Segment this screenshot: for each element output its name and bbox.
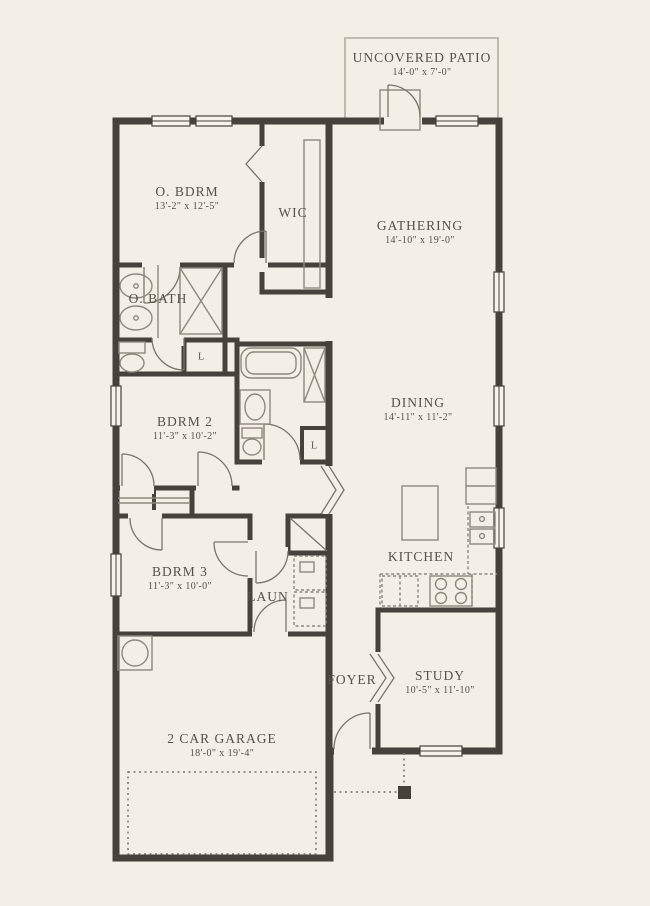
closet-label-linen-a: L: [198, 351, 204, 363]
kitchen-sink: [470, 512, 495, 527]
room-label-bedroom2: BDRM 2 11'-3" x 10'-2": [153, 414, 217, 442]
room-label-kitchen: KITCHEN: [388, 549, 454, 565]
porch-post: [398, 786, 411, 799]
room-label-dining: DINING 14'-11" x 11'-2": [383, 395, 452, 423]
room-label-foyer: FOYER: [327, 672, 376, 688]
water-heater: [122, 640, 148, 666]
room-label-owner-bath: O. BATH: [129, 291, 188, 307]
coat-closet-door: [290, 518, 327, 551]
floor-plan-page: UNCOVERED PATIO 14'-0" x 7'-0" O. BDRM 1…: [0, 0, 650, 906]
room-label-study: STUDY 10'-5" x 11'-10": [405, 668, 474, 696]
laundry-fixtures: [294, 556, 326, 626]
bedroom3-closet-door: [130, 518, 162, 550]
bath2-door: [264, 424, 300, 460]
bedroom2-closet-door: [122, 454, 154, 486]
room-label-gathering: GATHERING 14'-10" x 19'-0": [377, 218, 463, 246]
front-door: [334, 713, 370, 749]
porch-outline: [334, 753, 411, 799]
room-label-wic: WIC: [278, 205, 307, 221]
washer: [294, 556, 326, 590]
room-label-patio: UNCOVERED PATIO 14'-0" x 7'-0": [353, 50, 492, 78]
bath-fixtures: [118, 140, 325, 503]
kitchen-island: [402, 486, 438, 540]
garage-door-outline: [128, 772, 316, 854]
bedroom3-door: [214, 542, 248, 576]
room-label-laundry: LAUN: [247, 589, 289, 605]
room-label-bedroom3: BDRM 3 11'-3" x 10'-0": [148, 564, 212, 592]
floor-plan-drawing: [0, 0, 650, 906]
garage-entry-door: [254, 600, 286, 632]
room-label-garage: 2 CAR GARAGE 18'-0" x 19'-4": [167, 731, 277, 759]
closet-label-linen-b: L: [311, 440, 317, 452]
kitchen-fixtures: [380, 468, 497, 608]
dryer: [294, 592, 326, 626]
room-label-owner-bedroom: O. BDRM 13'-2" x 12'-5": [155, 184, 219, 212]
bedroom2-door: [198, 452, 232, 486]
